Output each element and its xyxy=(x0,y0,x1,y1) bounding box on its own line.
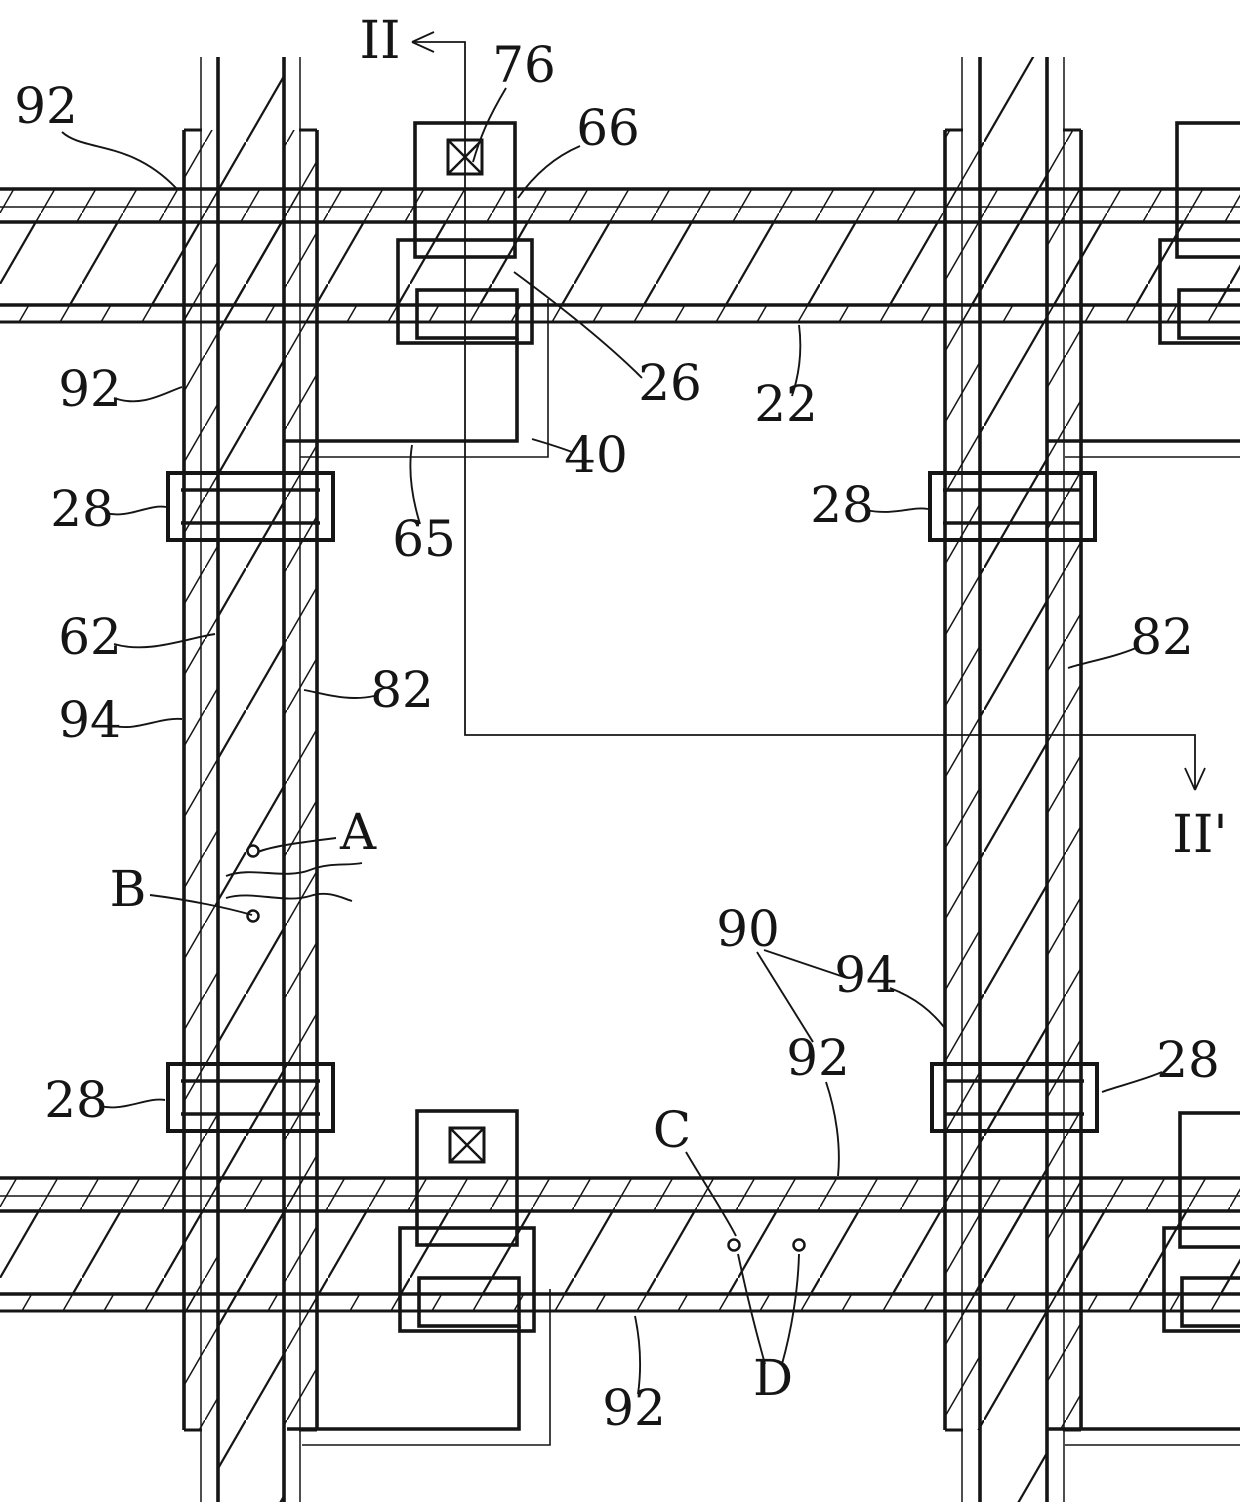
label-92-bottom: 92 xyxy=(602,1379,666,1437)
point-d-marker xyxy=(794,1240,805,1251)
label-66: 66 xyxy=(576,99,640,157)
label-22: 22 xyxy=(754,375,818,433)
label-76: 76 xyxy=(492,36,556,94)
label-section-II: II xyxy=(359,11,400,71)
data-line-left-hatch xyxy=(184,57,317,1502)
label-65: 65 xyxy=(392,510,456,568)
label-point-A: A xyxy=(339,803,377,861)
point-c-marker xyxy=(729,1240,740,1251)
label-40: 40 xyxy=(564,426,628,484)
label-92-top-left: 92 xyxy=(14,77,78,135)
label-90: 90 xyxy=(716,900,780,958)
label-82-right: 82 xyxy=(1130,608,1194,666)
label-92-left: 92 xyxy=(58,360,122,418)
label-82-left: 82 xyxy=(370,661,434,719)
label-62: 62 xyxy=(58,608,122,666)
label-point-C: C xyxy=(653,1101,691,1159)
tft-array-layout-drawing: 92 II 76 66 92 26 22 40 65 28 28 62 94 8… xyxy=(0,0,1240,1502)
point-b-marker xyxy=(248,911,259,922)
label-point-D: D xyxy=(753,1349,793,1407)
label-94-right: 94 xyxy=(834,946,898,1004)
point-a-marker xyxy=(248,846,259,857)
label-28-top-left: 28 xyxy=(50,480,114,538)
label-92-mid: 92 xyxy=(786,1029,850,1087)
label-point-B: B xyxy=(110,860,147,918)
label-28-top-right: 28 xyxy=(810,476,874,534)
label-28-bottom-right: 28 xyxy=(1156,1031,1220,1089)
label-section-II-prime: II' xyxy=(1172,805,1227,865)
data-line-right-hatch xyxy=(945,57,1081,1502)
label-26: 26 xyxy=(638,354,702,412)
label-94-left: 94 xyxy=(58,691,122,749)
patent-figure-sheet: 92 II 76 66 92 26 22 40 65 28 28 62 94 8… xyxy=(0,0,1240,1502)
label-28-bottom-left: 28 xyxy=(44,1071,108,1129)
